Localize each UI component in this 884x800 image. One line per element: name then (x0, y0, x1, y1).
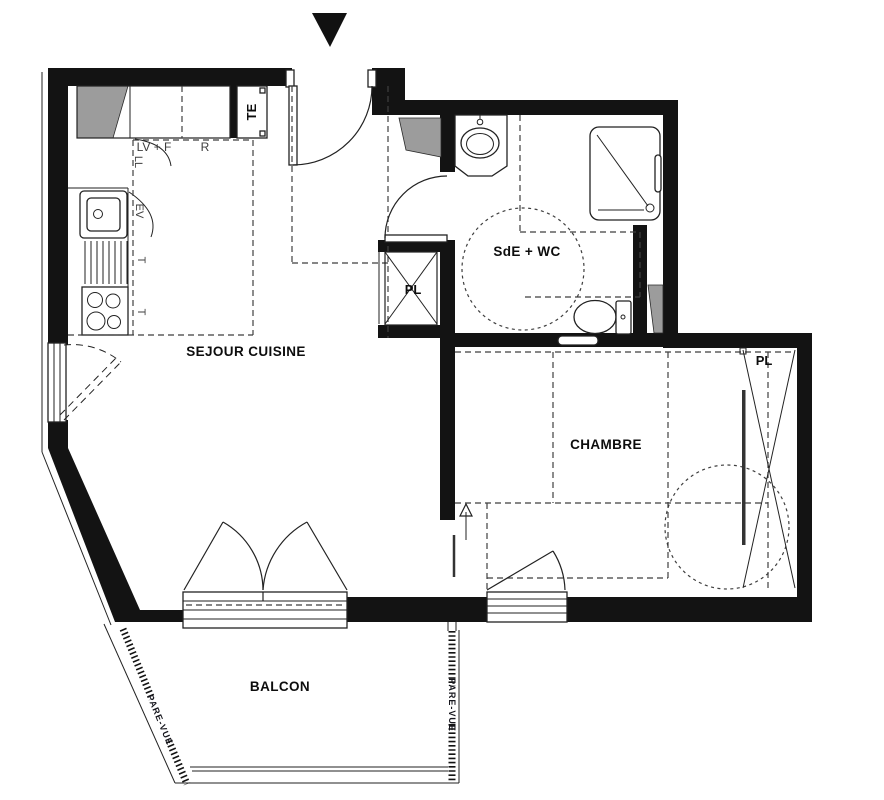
entrance-door-leaf (289, 86, 297, 165)
toilet-tank (616, 301, 631, 334)
window-frame (48, 343, 66, 422)
wall-bedroom-right (797, 345, 812, 622)
wall-left-upper (48, 68, 68, 345)
wall-left-below-window (48, 420, 68, 448)
bedroom-window-sash (487, 551, 553, 590)
entrance-triangle-marker (312, 13, 347, 47)
wall-bath-door-jamb (440, 115, 455, 172)
label-t-upper: T (135, 257, 147, 264)
bedroom-window (487, 551, 567, 622)
wall-bathroom-right (663, 100, 678, 345)
wall-bedroom-top (663, 333, 812, 348)
door-swing-left (223, 522, 263, 590)
label-chambre: CHAMBRE (570, 437, 642, 452)
drainboard (85, 241, 127, 284)
toilet-step (558, 336, 598, 345)
wall-sejour-bottom-right (347, 597, 487, 622)
bedroom-closet-door (742, 390, 746, 545)
label-lv-f: LV + F (137, 140, 172, 154)
cooktop (82, 287, 128, 335)
floor-plan-drawing: SEJOUR CUISINE CHAMBRE SdE + WC BALCON P… (0, 0, 884, 800)
door-sash-left (184, 522, 223, 590)
bathroom-fixtures (455, 115, 661, 345)
balcony-door (183, 522, 347, 628)
kitchen-fixtures (68, 139, 171, 335)
bedroom-turning-circle (665, 465, 789, 589)
label-pare-vue-right: PARE-VUE (447, 678, 457, 732)
door-sash-right (307, 522, 347, 590)
wall-bathroom-bottom (440, 333, 663, 347)
door-swing-right (263, 522, 307, 590)
bedroom-window-swing (553, 551, 565, 590)
railing-left-lower (169, 741, 187, 784)
label-sde-wc: SdE + WC (493, 244, 560, 259)
floor-plan-page: SEJOUR CUISINE CHAMBRE SdE + WC BALCON P… (0, 0, 884, 800)
label-t-lower: T (135, 309, 147, 316)
label-r: R (201, 140, 210, 154)
railing-left-upper (123, 629, 152, 699)
label-te: TE (244, 103, 259, 120)
entrance-door (286, 70, 376, 165)
entrance-jamb-left (286, 70, 294, 87)
bathroom-door-leaf (385, 235, 447, 242)
wall-te-divider (230, 86, 237, 138)
label-pl-chambre: PL (756, 353, 773, 368)
wall-bedroom-bottom (567, 597, 812, 622)
label-pare-vue-left: PARE-VUE (145, 693, 175, 747)
bedroom-window-sill (487, 592, 567, 622)
label-sejour-cuisine: SEJOUR CUISINE (186, 344, 306, 359)
label-ll: LL (132, 156, 144, 168)
bedroom-entry (454, 504, 472, 577)
entrance-door-swing (293, 86, 372, 165)
label-balcon: BALCON (250, 679, 310, 694)
shading-kitchen-corner (77, 86, 128, 138)
kitchen-sink-basin (87, 198, 120, 231)
shower-handle (655, 155, 661, 192)
label-pl-hall: PL (405, 282, 422, 297)
label-ev: EV (133, 204, 145, 219)
entrance-jamb-right (368, 70, 376, 87)
wall-top-left (48, 68, 292, 86)
shading-entry-corner (399, 118, 441, 157)
pare-vue-railings (123, 629, 452, 784)
wall-bathroom-top (405, 100, 678, 115)
wall-shading (77, 86, 663, 333)
sejour-left-window (48, 343, 121, 422)
wall-diagonal (48, 448, 183, 622)
bathroom-turning-circle (462, 208, 584, 330)
wall-sejour-chambre-partition (440, 240, 455, 520)
shading-wc-corner (648, 285, 663, 333)
toilet-bowl (574, 301, 616, 334)
wall-hall-closet-bottom (378, 325, 440, 338)
bathroom-door (385, 176, 447, 242)
bathroom-door-swing (385, 176, 447, 238)
